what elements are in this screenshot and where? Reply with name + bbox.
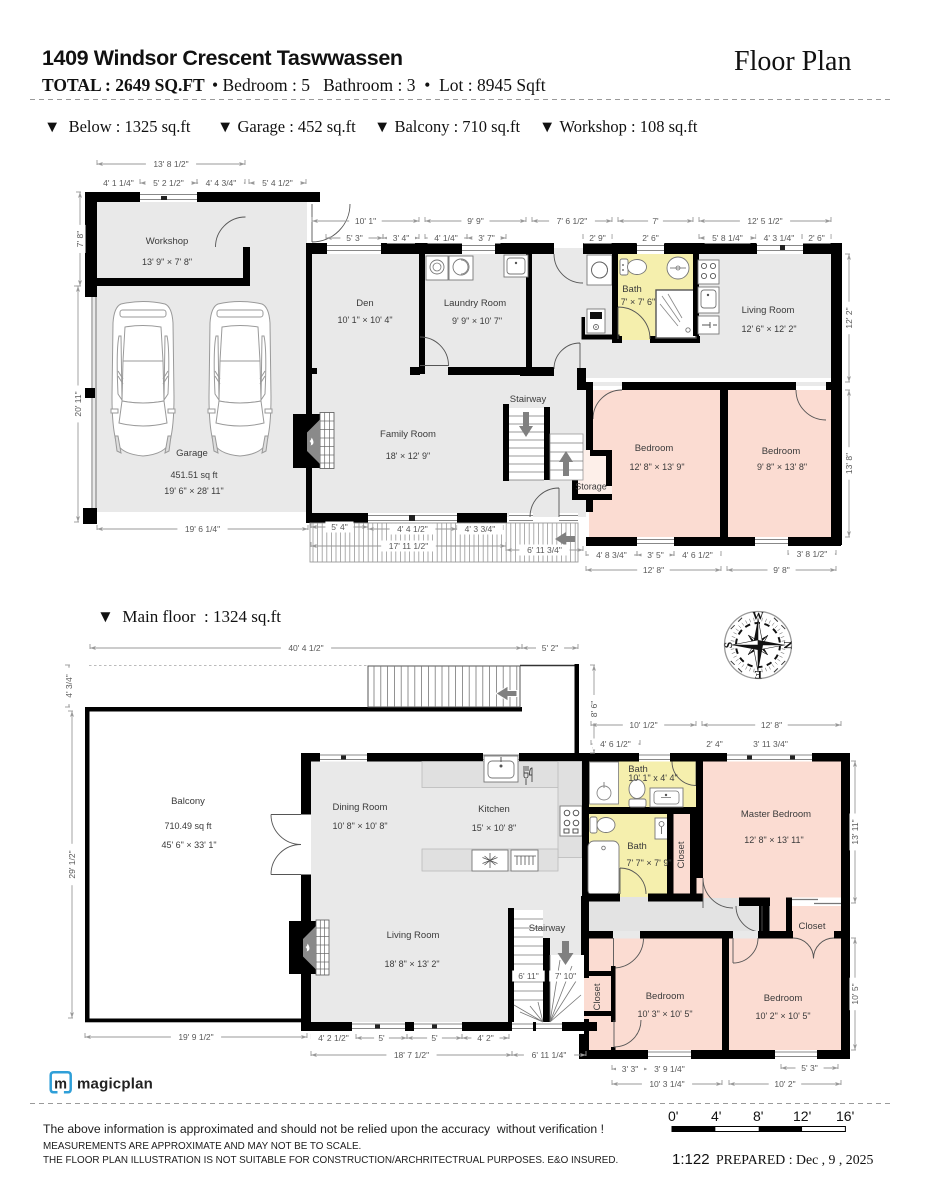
svg-text:▼ Garage : 452 sq.ft: ▼ Garage : 452 sq.ft [217,117,356,136]
svg-text:9' 8": 9' 8" [773,565,789,575]
svg-text:12': 12' [793,1108,811,1124]
svg-text:18' 8" × 13' 2": 18' 8" × 13' 2" [384,959,439,969]
svg-text:4': 4' [711,1108,721,1124]
svg-text:PREPARED : Dec , 9 , 2025: PREPARED : Dec , 9 , 2025 [716,1152,873,1167]
svg-text:10' 8" × 10' 8": 10' 8" × 10' 8" [332,821,387,831]
svg-text:4' 2": 4' 2" [477,1033,493,1043]
svg-text:Laundry Room: Laundry Room [444,298,506,309]
svg-text:N: N [781,641,793,650]
svg-text:8': 8' [753,1108,763,1124]
svg-text:Workshop: Workshop [146,236,189,247]
svg-text:18' × 12' 9": 18' × 12' 9" [386,451,430,461]
svg-text:451.51 sq ft: 451.51 sq ft [170,470,218,480]
svg-text:45' 6" × 33' 1": 45' 6" × 33' 1" [161,840,216,850]
svg-text:2' 6": 2' 6" [642,233,658,243]
svg-text:5' 3": 5' 3" [346,233,362,243]
svg-text:Bedroom: Bedroom [764,993,803,1004]
svg-text:Storage: Storage [575,482,607,492]
svg-text:1:122: 1:122 [672,1151,710,1168]
svg-text:19' 9 1/2": 19' 9 1/2" [178,1032,213,1042]
svg-text:4' 8 3/4": 4' 8 3/4" [596,550,627,560]
svg-text:Closet: Closet [799,921,826,932]
svg-text:3' 8 1/2": 3' 8 1/2" [797,549,828,559]
svg-text:15' × 10' 8": 15' × 10' 8" [472,823,516,833]
svg-text:Closet: Closet [592,983,603,1010]
svg-text:13' 8": 13' 8" [844,453,854,474]
svg-text:E: E [754,668,762,680]
svg-text:3' 9 1/4": 3' 9 1/4" [654,1064,685,1074]
svg-text:Den: Den [356,298,373,309]
svg-text:Living Room: Living Room [742,305,795,316]
svg-text:12' 6" × 12' 2": 12' 6" × 12' 2" [741,324,796,334]
svg-text:8' 6": 8' 6" [589,701,599,717]
svg-text:5': 5' [378,1033,385,1043]
svg-text:7' 8": 7' 8" [75,231,85,247]
svg-text:10' 5": 10' 5" [850,983,860,1004]
svg-text:10' 1" × 10' 4": 10' 1" × 10' 4" [337,315,392,325]
svg-text:Bedroom: Bedroom [635,443,674,454]
svg-text:magicplan: magicplan [77,1076,153,1093]
svg-text:Family Room: Family Room [380,429,436,440]
svg-text:5' 2": 5' 2" [542,643,558,653]
svg-text:4' 1/4": 4' 1/4" [434,233,458,243]
svg-text:5' 2 1/2": 5' 2 1/2" [153,178,184,188]
svg-text:• Bedroom : 5 Bathroom : 3: • Bedroom : 5 Bathroom : 3 • Lot : 8945 … [212,75,546,95]
svg-text:12' 2": 12' 2" [844,307,854,328]
svg-text:13' 8 1/2": 13' 8 1/2" [153,159,188,169]
svg-text:4' 3 3/4": 4' 3 3/4" [465,524,496,534]
svg-text:3' 3": 3' 3" [622,1064,638,1074]
svg-text:m: m [54,1077,67,1093]
svg-text:710.49 sq ft: 710.49 sq ft [164,821,212,831]
svg-text:THE FLOOR PLAN ILLUSTRATION IS: THE FLOOR PLAN ILLUSTRATION IS NOT SUITA… [43,1155,618,1166]
svg-text:Dining Room: Dining Room [333,802,388,813]
svg-text:17' 11 1/2": 17' 11 1/2" [389,541,428,551]
svg-text:9' 9" × 10' 7": 9' 9" × 10' 7" [452,316,502,326]
svg-text:S: S [723,642,735,648]
svg-text:Stairway: Stairway [510,394,547,405]
svg-text:3' 11 3/4": 3' 11 3/4" [753,739,788,749]
svg-text:16': 16' [836,1108,854,1124]
svg-text:The above information is appro: The above information is approximated an… [43,1122,604,1136]
svg-text:Kitchen: Kitchen [478,804,510,815]
svg-text:13' 9" × 7' 8": 13' 9" × 7' 8" [142,257,192,267]
svg-text:19' 6 1/4": 19' 6 1/4" [185,524,220,534]
svg-text:10' 1": 10' 1" [355,216,376,226]
svg-text:▼ Workshop : 108 sq.ft: ▼ Workshop : 108 sq.ft [539,117,698,136]
svg-text:6' 11 3/4": 6' 11 3/4" [527,545,562,555]
svg-text:5' 4": 5' 4" [331,522,347,532]
svg-text:4' 4 3/4": 4' 4 3/4" [206,178,237,188]
svg-text:20' 11": 20' 11" [73,391,83,416]
svg-text:5': 5' [431,1033,438,1043]
svg-text:29' 1/2": 29' 1/2" [67,850,77,878]
svg-text:7' 10": 7' 10" [555,971,576,981]
svg-text:3' 5": 3' 5" [647,550,663,560]
svg-text:4' 2 1/2": 4' 2 1/2" [318,1033,349,1043]
svg-text:10' 3" × 10' 5": 10' 3" × 10' 5" [637,1009,692,1019]
svg-text:10' 1/2": 10' 1/2" [629,720,657,730]
svg-text:12' 8": 12' 8" [761,720,782,730]
svg-text:4' 6 1/2": 4' 6 1/2" [682,550,713,560]
svg-text:12' 8" × 13' 9": 12' 8" × 13' 9" [629,462,684,472]
svg-text:Balcony: Balcony [171,796,205,807]
svg-text:7' 7" × 7' 9": 7' 7" × 7' 9" [626,858,671,868]
svg-text:40' 4 1/2": 40' 4 1/2" [288,643,323,653]
svg-text:5' 4 1/2": 5' 4 1/2" [262,178,293,188]
svg-text:3' 7": 3' 7" [478,233,494,243]
svg-text:2' 9": 2' 9" [589,233,605,243]
svg-text:Living Room: Living Room [387,930,440,941]
svg-text:9' 9": 9' 9" [467,216,483,226]
svg-text:W: W [752,611,764,623]
svg-text:4' 3 1/4": 4' 3 1/4" [764,233,795,243]
svg-text:Closet: Closet [676,841,687,868]
svg-text:2' 6": 2' 6" [808,233,824,243]
svg-text:Master Bedroom: Master Bedroom [741,809,811,820]
svg-text:2' 4": 2' 4" [706,739,722,749]
svg-text:6' 11 1/4": 6' 11 1/4" [532,1050,567,1060]
svg-text:13' 11": 13' 11" [850,819,860,844]
svg-text:4' 3/4": 4' 3/4" [64,674,74,698]
svg-text:4' 6 1/2": 4' 6 1/2" [600,739,631,749]
svg-text:MEASUREMENTS ARE APPROXIMATE A: MEASUREMENTS ARE APPROXIMATE AND MAY NOT… [43,1141,361,1152]
svg-text:Floor Plan: Floor Plan [734,46,851,77]
svg-text:5' 3": 5' 3" [801,1063,817,1073]
svg-text:10' 2": 10' 2" [774,1079,795,1089]
svg-text:▼ Balcony : 710 sq.ft: ▼ Balcony : 710 sq.ft [374,117,520,136]
svg-text:Bedroom: Bedroom [646,991,685,1002]
svg-text:10' 3 1/4": 10' 3 1/4" [649,1079,684,1089]
svg-text:18' 7 1/2": 18' 7 1/2" [394,1050,429,1060]
svg-text:12' 8" × 13' 11": 12' 8" × 13' 11" [744,835,803,845]
svg-text:19' 6" × 28' 11": 19' 6" × 28' 11" [164,486,223,496]
svg-text:▼ Main floor : 1324 sq.ft: ▼ Main floor : 1324 sq.ft [97,607,281,626]
svg-text:0': 0' [668,1108,678,1124]
svg-text:Stairway: Stairway [529,923,566,934]
svg-text:10' 1" x 4' 4": 10' 1" x 4' 4" [628,773,677,783]
svg-text:Bedroom: Bedroom [762,446,801,457]
svg-text:10' 2" × 10' 5": 10' 2" × 10' 5" [755,1011,810,1021]
svg-text:Bath: Bath [622,284,642,295]
svg-text:12' 8": 12' 8" [643,565,664,575]
svg-text:TOTAL : 2649 SQ.FT: TOTAL : 2649 SQ.FT [42,75,205,95]
svg-text:9' 8" × 13' 8": 9' 8" × 13' 8" [757,462,807,472]
svg-text:12' 5 1/2": 12' 5 1/2" [747,216,782,226]
svg-text:Garage: Garage [176,448,208,459]
svg-text:7' × 7' 6": 7' × 7' 6" [621,297,655,307]
svg-text:1409 Windsor Crescent Taswwass: 1409 Windsor Crescent Taswwassen [42,46,403,70]
svg-text:4' 4 1/2": 4' 4 1/2" [397,524,428,534]
svg-text:5' 8 1/4": 5' 8 1/4" [712,233,743,243]
svg-text:6' 11": 6' 11" [518,971,539,981]
svg-text:3' 4": 3' 4" [393,233,409,243]
svg-text:4' 1 1/4": 4' 1 1/4" [103,178,134,188]
svg-text:7': 7' [652,216,659,226]
svg-text:▼ Below : 1325 sq.ft: ▼ Below : 1325 sq.ft [44,117,191,136]
svg-text:Bath: Bath [627,841,647,852]
svg-text:7' 6 1/2": 7' 6 1/2" [557,216,588,226]
